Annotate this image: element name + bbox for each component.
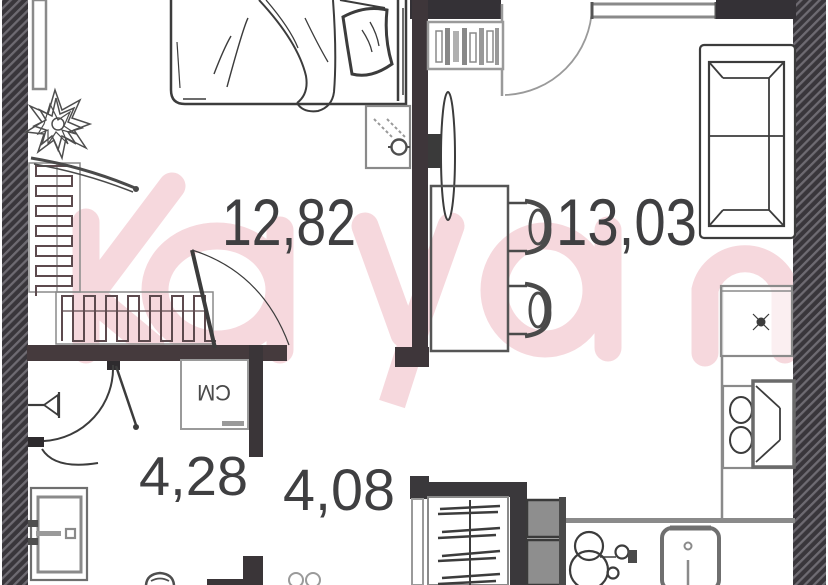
svg-text:СМ: СМ — [197, 380, 231, 405]
svg-text:12,82: 12,82 — [222, 185, 356, 259]
svg-text:4,08: 4,08 — [283, 458, 395, 523]
svg-text:13,03: 13,03 — [556, 185, 697, 259]
svg-text:4,28: 4,28 — [139, 445, 248, 507]
